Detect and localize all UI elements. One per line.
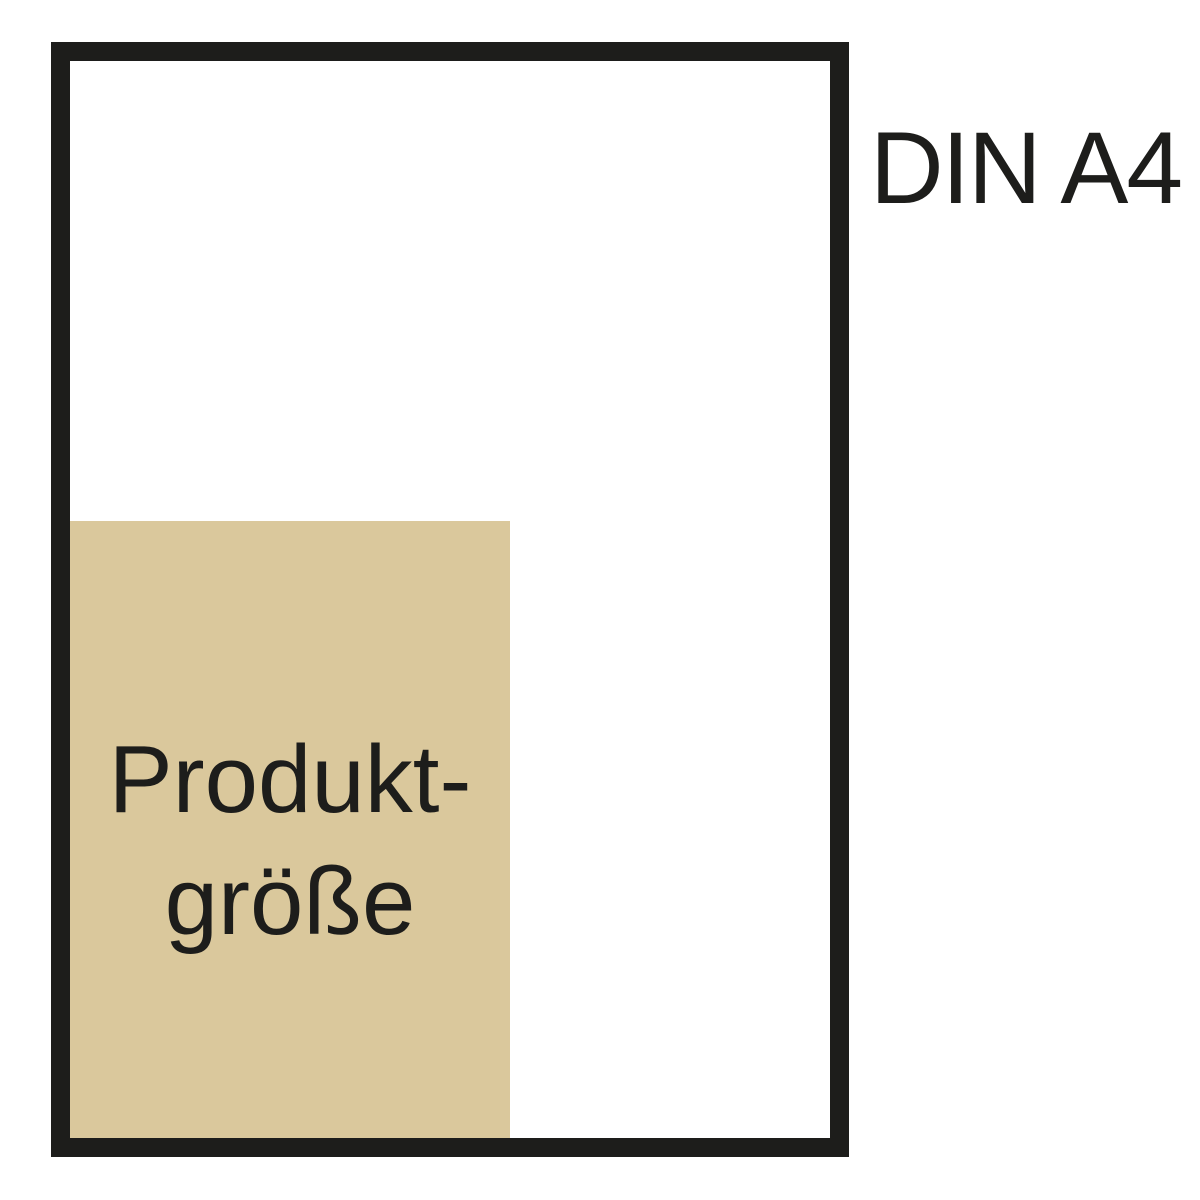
- din-a4-outline: Produkt- größe: [51, 42, 849, 1157]
- product-size-label: Produkt- größe: [70, 719, 510, 963]
- product-size-label-line2: größe: [165, 848, 416, 955]
- product-size-rect: Produkt- größe: [70, 521, 510, 1138]
- din-a4-label: DIN A4: [870, 112, 1181, 224]
- diagram-canvas: Produkt- größe DIN A4: [0, 0, 1200, 1200]
- product-size-label-line1: Produkt-: [109, 726, 472, 833]
